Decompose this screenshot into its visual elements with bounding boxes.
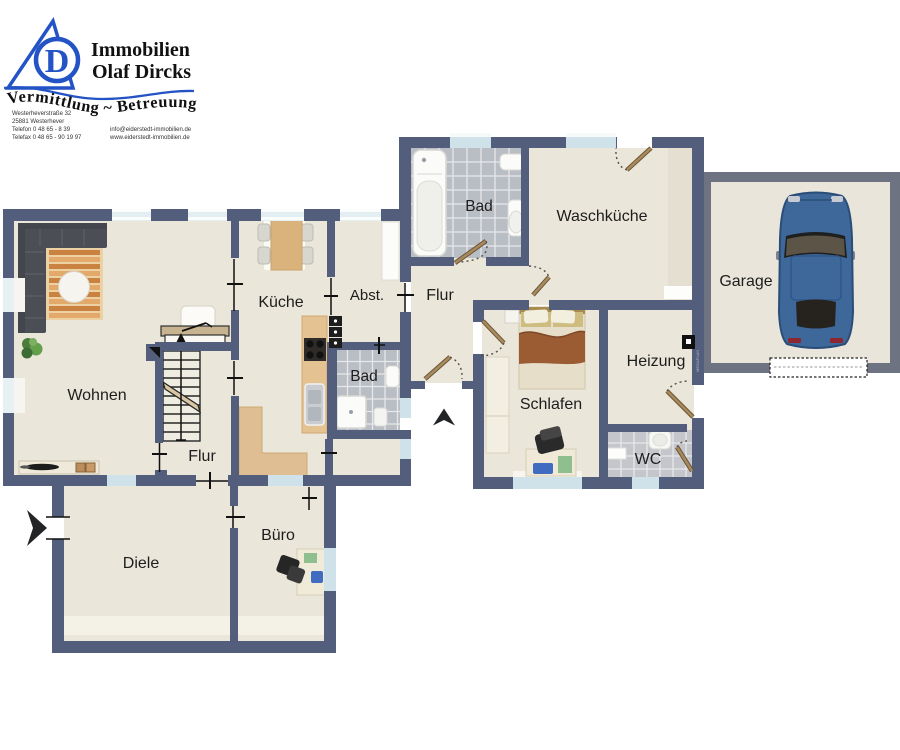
svg-text:Bad: Bad (465, 198, 493, 215)
svg-text:Küche: Küche (258, 294, 303, 311)
svg-text:www.eiderstedt-immobilien.de: www.eiderstedt-immobilien.de (109, 135, 190, 141)
svg-text:Westerheverstraße 32: Westerheverstraße 32 (12, 111, 72, 117)
svg-text:Heizung: Heizung (627, 353, 686, 370)
svg-text:Garage: Garage (719, 273, 772, 290)
svg-text:Schlafen: Schlafen (520, 396, 582, 413)
svg-text:Telefax 0 48 65 - 90 19 97: Telefax 0 48 65 - 90 19 97 (12, 135, 82, 141)
svg-text:Immobilien: Immobilien (91, 39, 190, 61)
svg-text:25881 Westerhever: 25881 Westerhever (12, 119, 64, 125)
svg-text:Telefon 0 48 65 - 8 39: Telefon 0 48 65 - 8 39 (12, 127, 71, 133)
svg-text:Diele: Diele (123, 555, 160, 572)
svg-text:Abst.: Abst. (350, 287, 384, 304)
svg-text:D: D (45, 43, 70, 80)
svg-text:MEGAPLAN: MEGAPLAN (695, 350, 700, 372)
svg-text:Büro: Büro (261, 527, 295, 544)
svg-text:info@eiderstedt-immobilien.de: info@eiderstedt-immobilien.de (110, 127, 192, 133)
svg-text:Bad: Bad (350, 368, 378, 385)
svg-text:Wohnen: Wohnen (67, 387, 126, 404)
svg-text:WC: WC (635, 451, 662, 468)
svg-text:Waschküche: Waschküche (557, 208, 648, 225)
svg-text:Olaf Dircks: Olaf Dircks (92, 61, 191, 83)
svg-text:Flur: Flur (188, 448, 216, 465)
svg-text:Flur: Flur (426, 287, 454, 304)
